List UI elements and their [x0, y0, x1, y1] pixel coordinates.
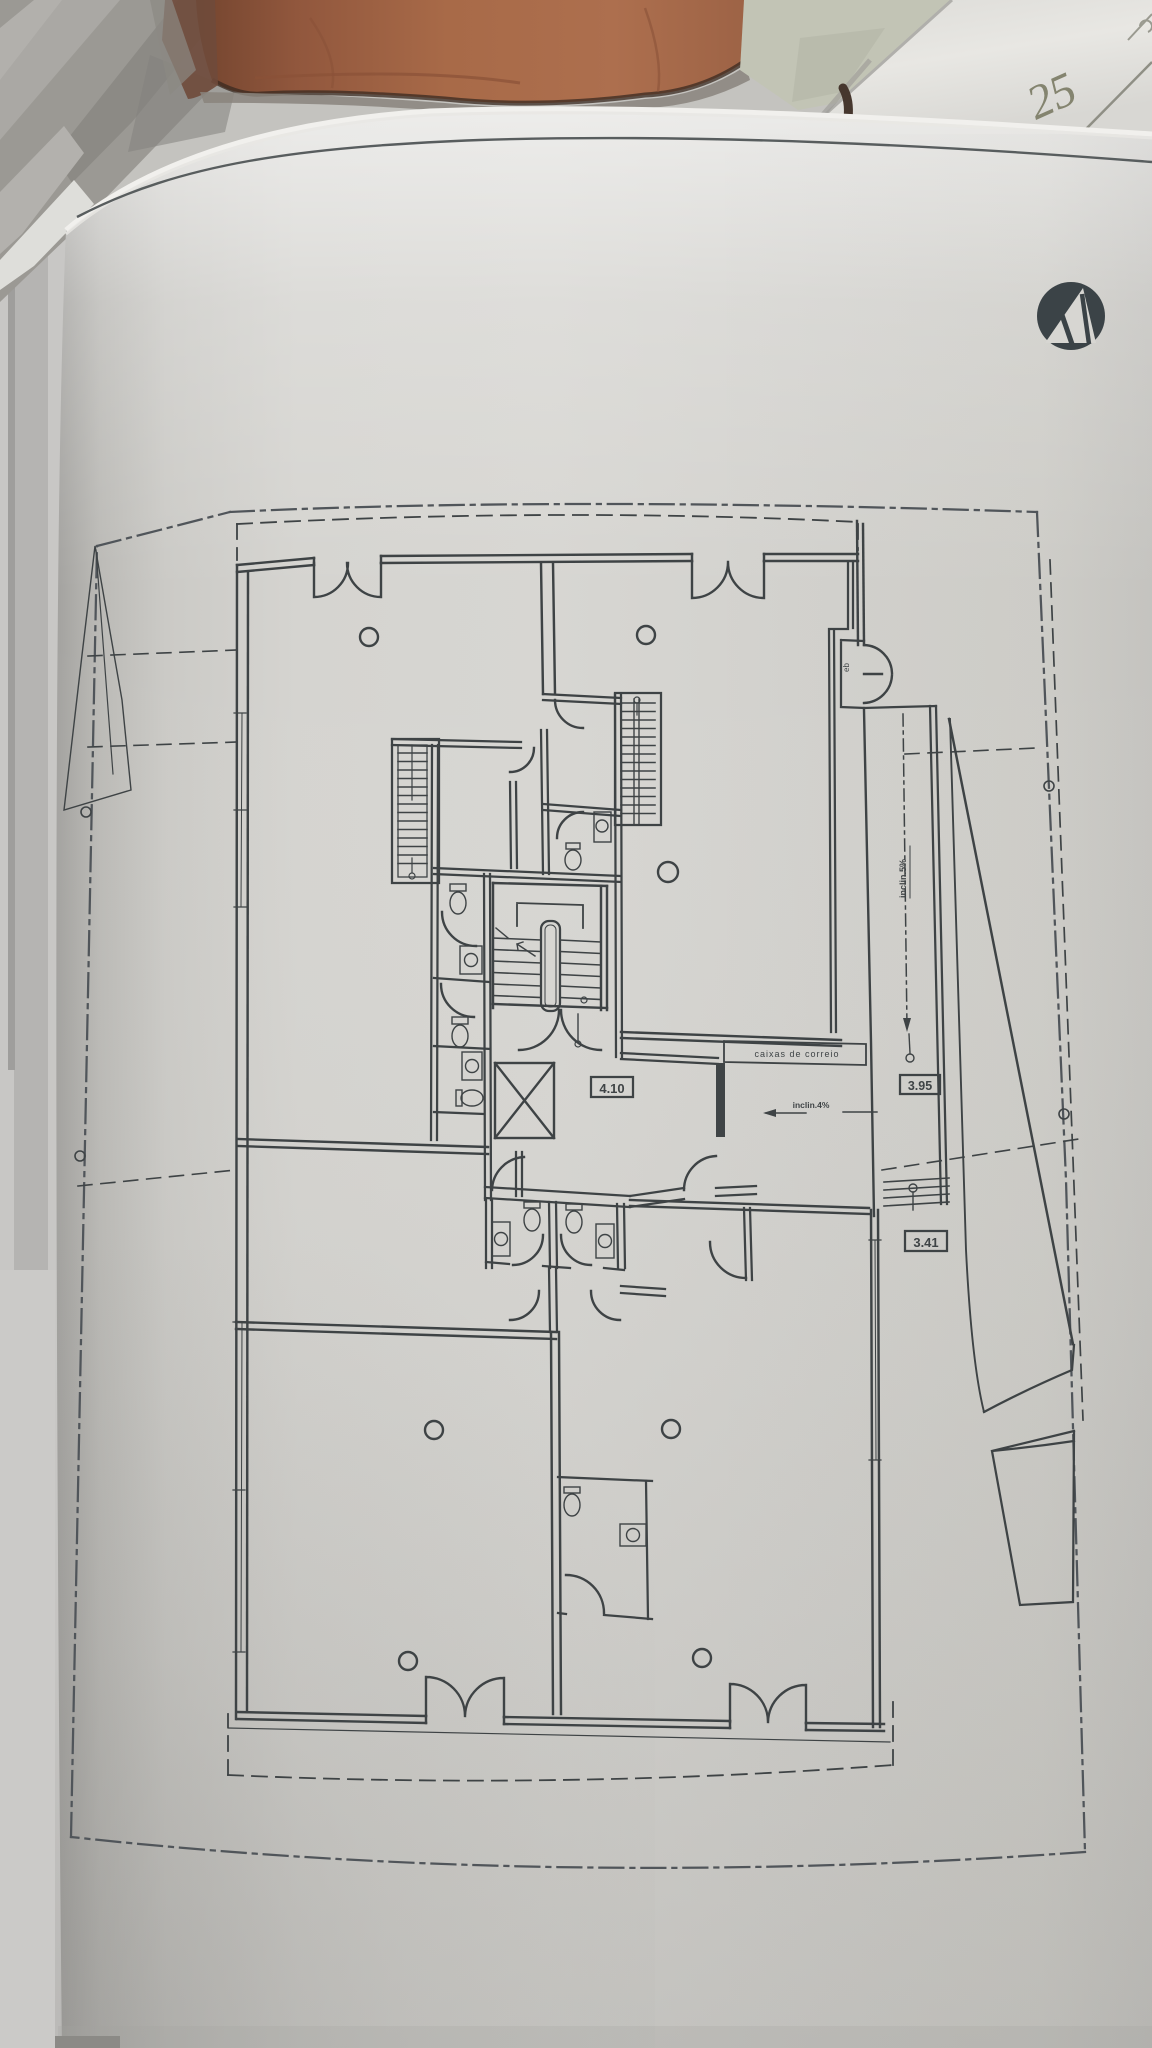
- svg-text:inclin.5%: inclin.5%: [898, 859, 908, 898]
- svg-text:caixas de correio: caixas de correio: [754, 1049, 839, 1059]
- svg-text:eb: eb: [842, 663, 851, 672]
- svg-text:inclin.4%: inclin.4%: [793, 1100, 830, 1110]
- svg-text:4.10: 4.10: [599, 1081, 624, 1096]
- svg-text:3.41: 3.41: [913, 1235, 938, 1250]
- svg-text:3.95: 3.95: [908, 1079, 932, 1093]
